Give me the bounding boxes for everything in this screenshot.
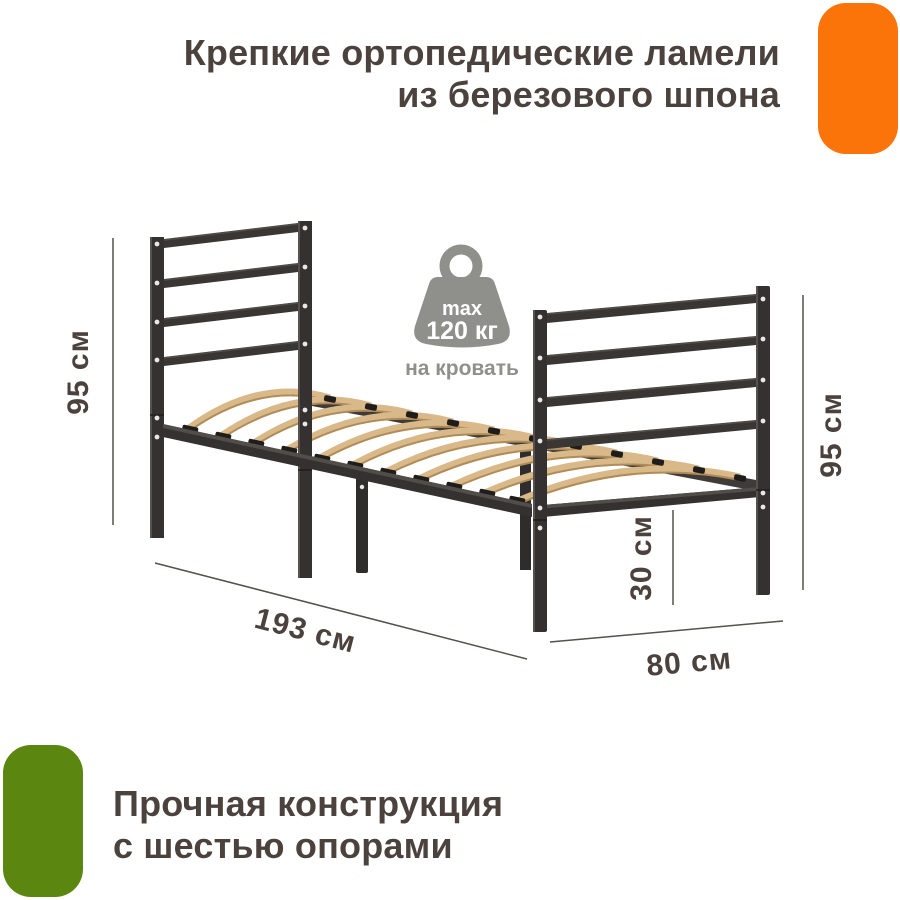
- weight-value: 120 кг: [426, 317, 498, 345]
- dimension-height-left: 95 см: [62, 238, 113, 525]
- dimension-height-left-label: 95 см: [62, 329, 95, 415]
- dimension-width-label: 80 см: [645, 642, 733, 683]
- max-weight-kettlebell-icon: max 120 кг на кровать: [405, 250, 519, 381]
- dimension-width: 80 см: [550, 621, 783, 683]
- dimension-leg-clearance-label: 30 см: [625, 515, 658, 601]
- front-middle-leg: [356, 468, 368, 573]
- bed-diagram: 95 см 95 см 30 см 193 см 80 см max 120 к…: [0, 0, 900, 900]
- weight-caption: на кровать: [405, 357, 519, 380]
- product-infographic: Крепкие ортопедические ламели из березов…: [0, 0, 900, 900]
- headboard: [150, 221, 312, 578]
- dimension-length-label: 193 см: [251, 602, 359, 660]
- dimension-leg-clearance: 30 см: [625, 510, 673, 605]
- dimension-height-right: 95 см: [803, 295, 848, 590]
- dimension-length: 193 см: [155, 563, 527, 660]
- foot-end-rail: [543, 487, 760, 517]
- dimension-height-right-label: 95 см: [815, 392, 848, 478]
